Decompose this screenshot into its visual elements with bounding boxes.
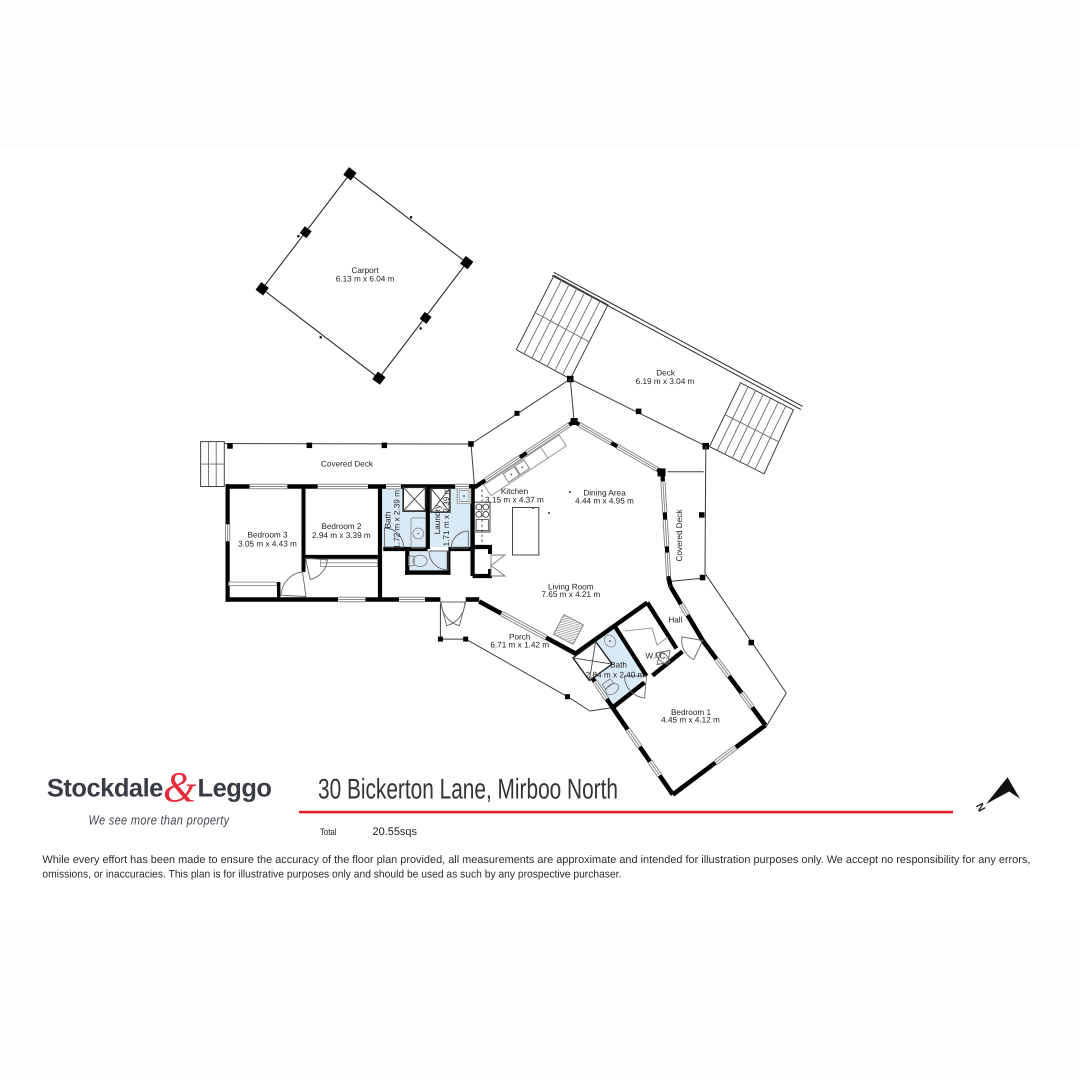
svg-text:&: & [163, 765, 197, 812]
svg-text:Leggo: Leggo [198, 774, 272, 802]
svg-text:Covered Deck: Covered Deck [321, 460, 374, 469]
svg-text:Bath: Bath [610, 660, 627, 669]
svg-text:Bedroom 2: Bedroom 2 [321, 522, 361, 531]
svg-text:W.I.C.: W.I.C. [645, 651, 667, 660]
svg-text:6.13 m x 6.04 m: 6.13 m x 6.04 m [336, 274, 395, 283]
svg-text:3.15 m x 4.37 m: 3.15 m x 4.37 m [485, 495, 544, 504]
svg-text:2.84 m x 2.40 m: 2.84 m x 2.40 m [586, 671, 645, 680]
svg-text:6.19 m x 3.04 m: 6.19 m x 3.04 m [636, 377, 695, 386]
svg-text:1.72 m x 2.39 m: 1.72 m x 2.39 m [393, 490, 402, 549]
svg-text:1.71 m x 2.39 m: 1.71 m x 2.39 m [442, 487, 451, 546]
svg-text:Total: Total [320, 827, 337, 838]
svg-text:30 Bickerton Lane, Mirboo Nort: 30 Bickerton Lane, Mirboo North [318, 774, 618, 806]
svg-text:Bath: Bath [384, 511, 393, 528]
svg-text:2.94 m x 3.39 m: 2.94 m x 3.39 m [312, 531, 371, 540]
svg-text:We see more than property: We see more than property [89, 813, 231, 828]
svg-text:Covered Deck: Covered Deck [675, 509, 684, 562]
svg-text:3.05 m x 4.43 m: 3.05 m x 4.43 m [238, 540, 297, 549]
svg-text:20.55sqs: 20.55sqs [373, 826, 418, 838]
svg-text:Bedroom 3: Bedroom 3 [247, 531, 287, 540]
svg-text:omissions, or inaccuracies. Th: omissions, or inaccuracies. This plan is… [42, 869, 621, 881]
svg-text:4.44 m x 4.95 m: 4.44 m x 4.95 m [575, 497, 634, 506]
svg-text:6.71 m x 1.42 m: 6.71 m x 1.42 m [490, 641, 549, 650]
svg-text:4.45 m x 4.12 m: 4.45 m x 4.12 m [661, 715, 720, 724]
svg-text:Stockdale: Stockdale [47, 774, 163, 802]
svg-text:Hall: Hall [668, 615, 682, 624]
svg-text:7.65 m x 4.21 m: 7.65 m x 4.21 m [541, 590, 600, 599]
svg-text:While every effort has been ma: While every effort has been made to ensu… [42, 854, 1030, 866]
svg-text:Laundry: Laundry [433, 504, 442, 534]
